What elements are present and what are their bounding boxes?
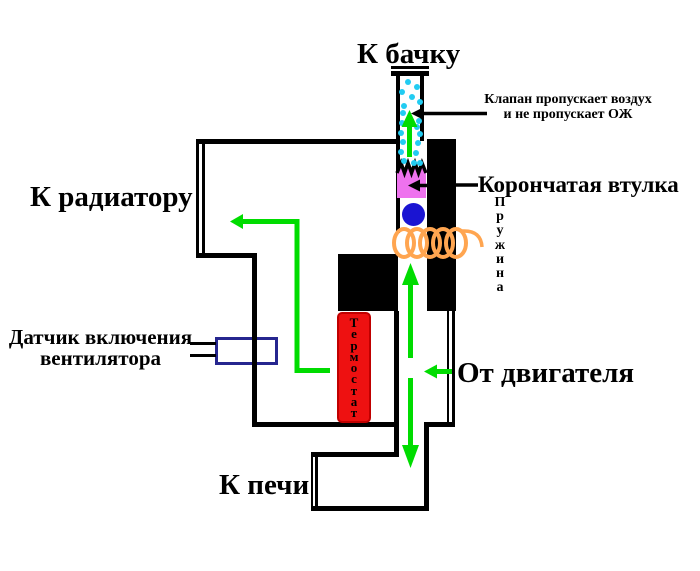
flow-down-arrowhead — [402, 445, 419, 468]
tank-pipe-left-wall — [396, 71, 400, 233]
bottom-left-wall — [252, 422, 399, 427]
left-step-wall — [196, 253, 257, 258]
crown-bushing-shape — [397, 163, 426, 198]
stove-end-inner-wall — [315, 452, 318, 511]
spring-letter: П — [495, 196, 506, 210]
spring-letter: н — [496, 267, 504, 281]
flow-arrow-heads — [230, 110, 437, 468]
spring-letter: у — [497, 224, 504, 238]
crown-bushing-arrowhead — [408, 180, 420, 192]
sensor-leader-line-top — [190, 342, 216, 345]
mid-left-wall — [252, 253, 257, 427]
engine-pipe-inner-wall — [452, 311, 456, 423]
label-to-radiator: К радиатору — [30, 181, 193, 214]
fan-sensor-line2: вентилятора — [8, 348, 193, 369]
right-step-wall — [425, 422, 455, 427]
label-spring-vertical: П р у ж и н а — [490, 196, 510, 295]
thermostat-diagram: Т е р м о с т а т — [0, 0, 700, 571]
stove-end-outer-wall — [311, 452, 313, 511]
sensor-leader-line-bottom — [190, 354, 216, 357]
valve-note-line2: и не пропускает ОЖ — [468, 107, 668, 122]
flow-to-tank-arrowhead — [402, 110, 418, 127]
lower-right-wall — [424, 422, 429, 511]
channel-left-wall — [394, 311, 399, 423]
thermostat-letter: т — [351, 407, 357, 418]
tank-pipe-right-wall — [420, 71, 424, 141]
label-from-engine: От двигателя — [457, 357, 634, 390]
engine-pipe-outer-wall — [447, 311, 449, 423]
label-crown-bushing: Корончатая втулка — [478, 172, 679, 198]
label-fan-sensor: Датчик включения вентилятора — [8, 327, 193, 369]
crown-zigzag-edge — [397, 163, 426, 173]
spring-letter: и — [496, 253, 504, 267]
fan-sensor-box — [215, 337, 278, 365]
label-valve-note: Клапан пропускает воздух и не пропускает… — [468, 92, 668, 122]
flow-up-arrowhead — [402, 263, 419, 285]
label-to-stove: К печи — [219, 469, 309, 502]
label-to-tank: К бачку — [357, 38, 460, 71]
fan-sensor-line1: Датчик включения — [8, 327, 193, 348]
thermostat-element: Т е р м о с т а т — [337, 312, 371, 423]
stove-bottom-wall — [313, 506, 429, 511]
flow-to-radiator-arrowhead — [230, 214, 243, 229]
channel-connector-wall — [394, 422, 399, 457]
valve-ball — [402, 203, 425, 226]
spring-letter: р — [496, 210, 504, 224]
valve-note-line1: Клапан пропускает воздух — [468, 92, 668, 107]
valve-seat-right-block — [427, 139, 456, 311]
radiator-end-inner-wall — [202, 139, 205, 258]
radiator-end-outer-wall — [196, 139, 199, 258]
spring-letter: ж — [495, 239, 505, 253]
top-wall — [198, 139, 396, 144]
valve-seat-left-block — [338, 254, 398, 311]
spring-letter: а — [497, 281, 504, 295]
stove-top-wall — [313, 452, 398, 457]
flow-from-engine-arrowhead — [424, 365, 437, 379]
